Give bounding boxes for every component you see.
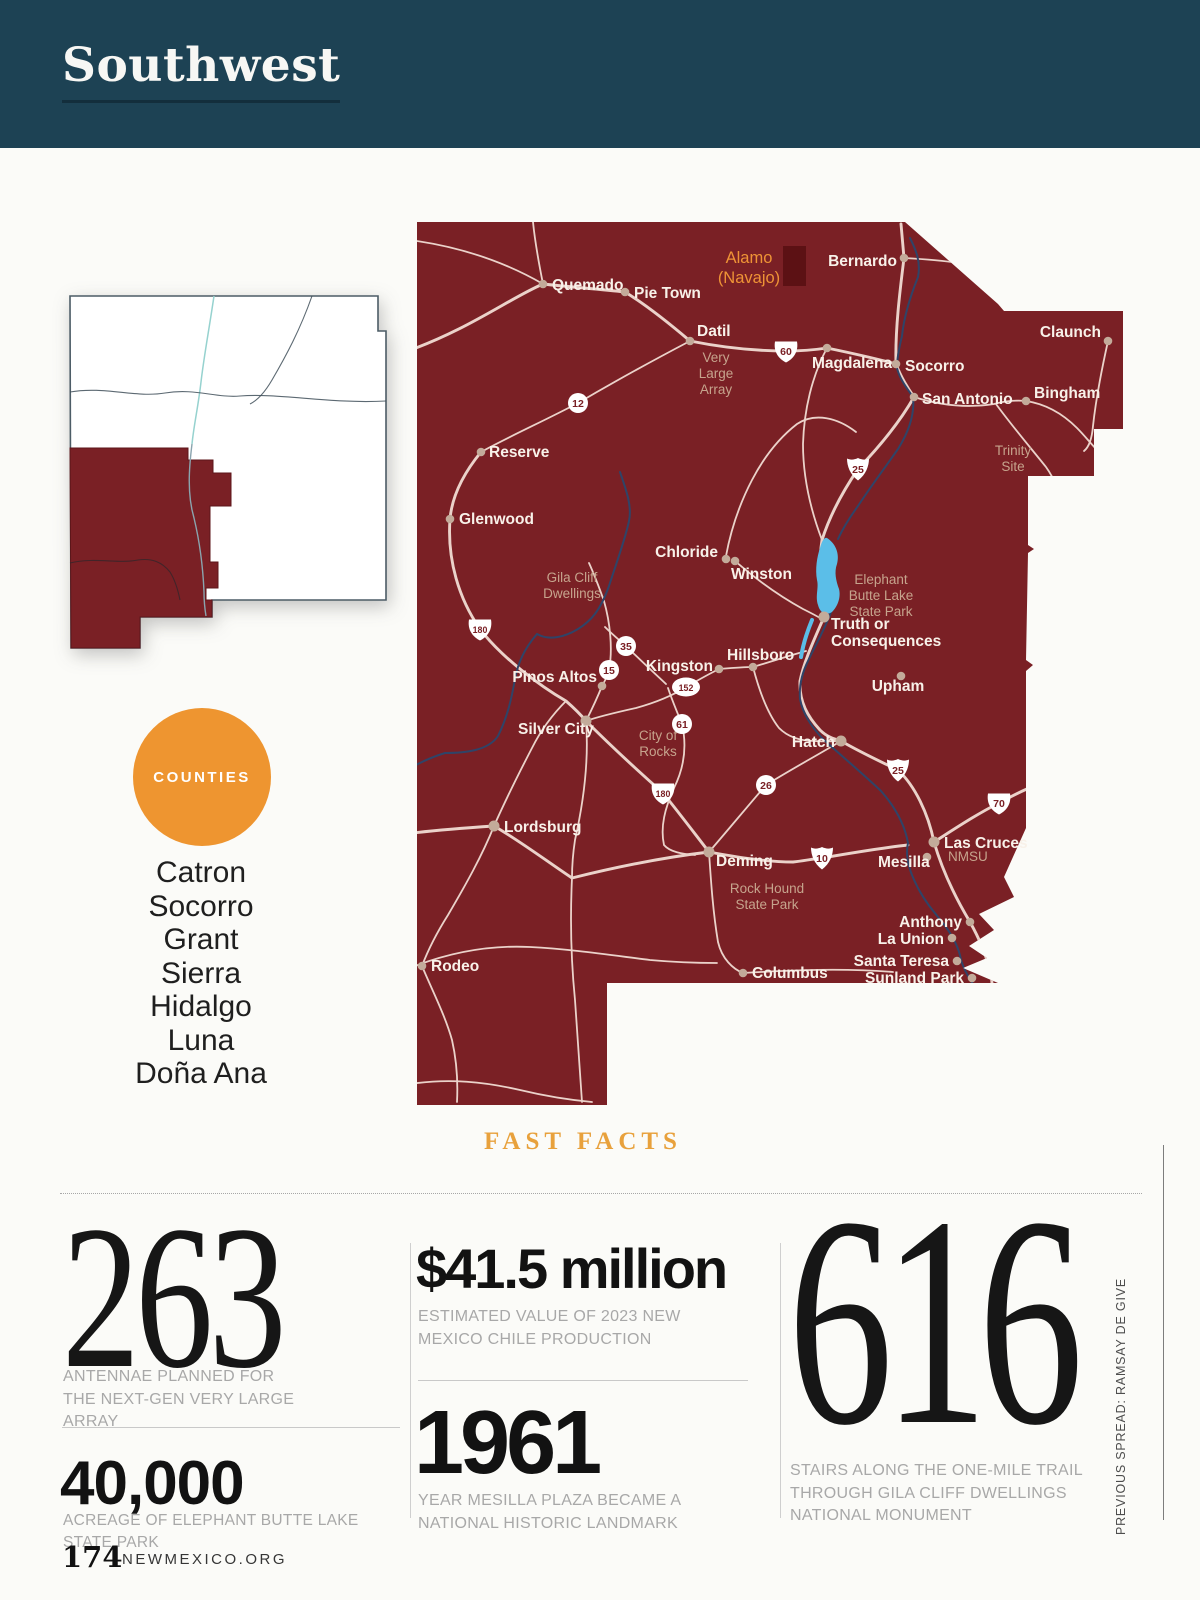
county-item: Catron (58, 856, 344, 890)
svg-text:60: 60 (780, 346, 792, 358)
svg-text:25: 25 (892, 765, 904, 777)
highway-shield-35: 35 (616, 636, 636, 656)
area-label: Gila CliffDwellings (543, 570, 601, 601)
town-label: Glenwood (459, 511, 534, 528)
county-item: Doña Ana (58, 1057, 344, 1091)
town-label: La Union (878, 931, 944, 948)
town-dot (929, 837, 940, 848)
svg-text:12: 12 (572, 398, 584, 410)
town-dot (910, 393, 919, 402)
town-dot (823, 344, 832, 353)
town-dot (489, 821, 500, 832)
town-dot (1104, 337, 1113, 346)
stat-caption-stairs: STAIRS ALONG THE ONE-MILE TRAIL THROUGH … (790, 1460, 1105, 1528)
town-dot (621, 288, 630, 297)
region-header: Southwest (0, 0, 1200, 148)
town-label: Rodeo (431, 958, 479, 975)
town-label: Quemado (552, 277, 623, 294)
town-label: Lordsburg (504, 819, 582, 836)
svg-text:180: 180 (656, 789, 671, 799)
town-dot (704, 847, 715, 858)
town-dot (686, 337, 695, 346)
town-label: Kingston (646, 658, 713, 675)
page-number: 174 (62, 1540, 123, 1574)
region-map: QuemadoPie TownDatilBernardoMagdalenaSoc… (405, 215, 1135, 1115)
town-label: Columbus (752, 965, 828, 982)
highway-shield-61: 61 (672, 714, 692, 734)
town-label: Pinos Altos (512, 669, 597, 686)
stat-caption-antennae: ANTENNAE PLANNED FOR THE NEXT-GEN VERY L… (63, 1366, 311, 1434)
town-label: Magdalena (812, 355, 892, 372)
town-dot (900, 254, 909, 263)
town-dot (739, 969, 748, 978)
stat-caption-mesilla: YEAR MESILLA PLAZA BECAME A NATIONAL HIS… (418, 1490, 763, 1535)
county-item: Hidalgo (58, 990, 344, 1024)
stat-value-antennae: 263 (62, 1206, 282, 1391)
town-label: Silver City (518, 721, 594, 738)
svg-text:25: 25 (852, 464, 864, 476)
column-rule-1 (410, 1243, 411, 1518)
county-item: Luna (58, 1024, 344, 1058)
counties-badge-label: COUNTIES (153, 769, 251, 786)
counties-list: CatronSocorroGrantSierraHidalgoLunaDoña … (58, 856, 344, 1091)
highway-shield-152: 152 (672, 678, 700, 697)
town-dot (948, 934, 957, 943)
town-label: Hillsboro (727, 647, 794, 664)
stat-value-chile: $41.5 million (416, 1236, 726, 1301)
town-dot (598, 682, 607, 691)
town-label: Hatch (792, 734, 835, 751)
highway-shield-15: 15 (599, 660, 619, 680)
area-label: VeryLargeArray (699, 350, 734, 397)
town-dot (722, 555, 731, 564)
town-label: Pie Town (634, 285, 701, 302)
column2-divider (418, 1380, 748, 1381)
inset-highlight-southwest (70, 448, 231, 648)
town-label: Socorro (905, 358, 964, 375)
town-dot (892, 360, 901, 369)
highway-shield-26: 26 (756, 775, 776, 795)
county-item: Grant (58, 923, 344, 957)
town-label: San Antonio (922, 391, 1013, 408)
column-rule-2 (780, 1243, 781, 1518)
town-dot (836, 736, 847, 747)
area-label: ElephantButte LakeState Park (849, 572, 914, 619)
town-label: Claunch (1040, 324, 1101, 341)
alamo-reservation-area (783, 246, 806, 286)
highway-shield-12: 12 (568, 393, 588, 413)
magazine-page: Southwest COUNTIES CatronSocorroGrantSie… (0, 0, 1200, 1600)
county-item: Socorro (58, 890, 344, 924)
state-inset-map (60, 288, 396, 656)
town-label: Upham (872, 678, 925, 695)
counties-badge: COUNTIES (133, 708, 271, 846)
town-dot (731, 557, 740, 566)
area-label: Rock HoundState Park (730, 881, 804, 912)
fast-facts-heading: FAST FACTS (0, 1128, 1166, 1156)
stat-value-acreage: 40,000 (60, 1448, 244, 1519)
site-url: NEWMEXICO.ORG (122, 1551, 287, 1568)
column1-divider (62, 1427, 400, 1428)
svg-text:26: 26 (760, 780, 772, 792)
area-label: City ofRocks (639, 728, 678, 759)
svg-text:10: 10 (816, 853, 828, 865)
town-label: Bernardo (828, 253, 897, 270)
town-label: Datil (697, 323, 731, 340)
town-label: Anthony (899, 914, 962, 931)
town-label: Sunland Park (865, 970, 964, 987)
town-dot (477, 448, 486, 457)
town-label: Chloride (655, 544, 718, 561)
stat-caption-chile: ESTIMATED VALUE OF 2023 NEW MEXICO CHILE… (418, 1306, 738, 1351)
town-label: Reserve (489, 444, 550, 461)
stat-value-mesilla: 1961 (414, 1392, 598, 1495)
town-dot (539, 280, 548, 289)
town-label: Mesilla (878, 854, 930, 871)
svg-text:152: 152 (679, 683, 694, 693)
town-label: Winston (731, 566, 792, 583)
area-label: NMSU (948, 849, 988, 864)
town-dot (1022, 397, 1031, 406)
credit-rule (1163, 1145, 1164, 1520)
svg-text:35: 35 (620, 641, 632, 653)
county-item: Sierra (58, 957, 344, 991)
town-label: Deming (716, 853, 773, 870)
town-dot (715, 665, 724, 674)
town-dot (953, 957, 962, 966)
town-label: Bingham (1034, 385, 1100, 402)
town-dot (966, 918, 975, 927)
svg-text:180: 180 (473, 625, 488, 635)
svg-text:15: 15 (603, 665, 615, 677)
photo-credit: PREVIOUS SPREAD: RAMSAY DE GIVE (1114, 1278, 1128, 1535)
town-dot (446, 515, 455, 524)
svg-text:70: 70 (993, 798, 1005, 810)
town-dot (968, 974, 977, 983)
town-dot (819, 612, 830, 623)
stat-value-stairs: 616 (788, 1198, 1074, 1444)
svg-text:61: 61 (676, 719, 688, 731)
town-label: Santa Teresa (854, 953, 950, 970)
town-dot (418, 962, 427, 971)
page-title: Southwest (0, 0, 1200, 103)
